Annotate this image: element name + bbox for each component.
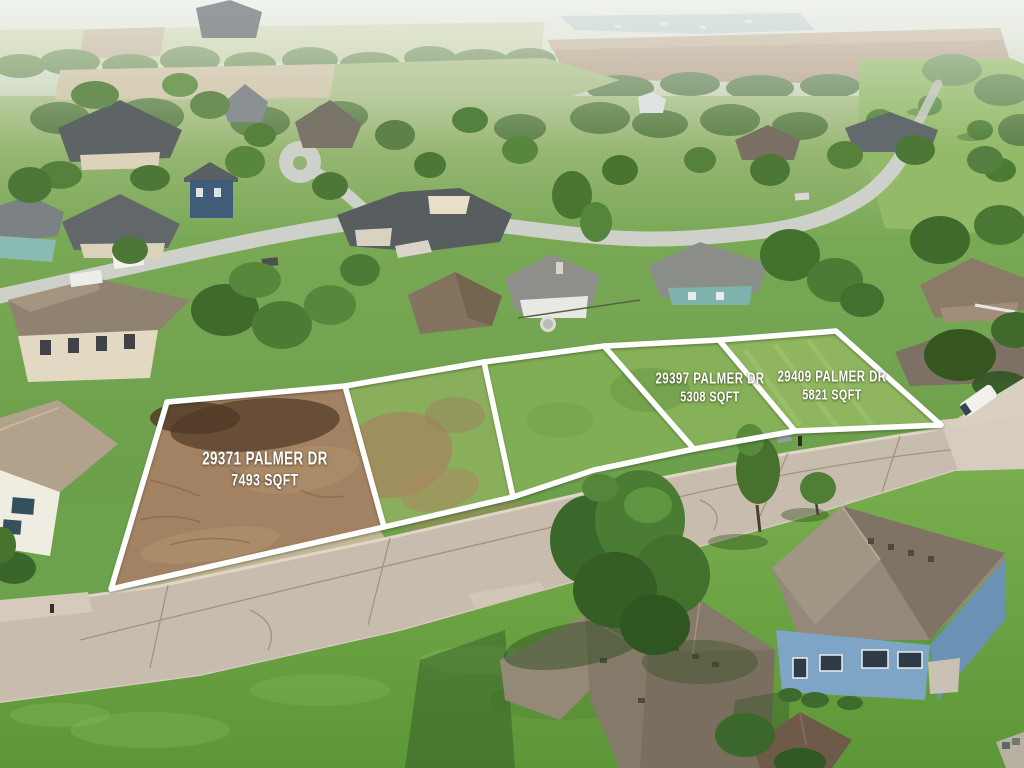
lot-area: 5308 SQFT bbox=[655, 388, 764, 408]
pedestrian bbox=[50, 604, 54, 613]
aerial-photo: 29371 PALMER DR 7493 SQFT 29397 PALMER D… bbox=[0, 0, 1024, 768]
pedestrian-2 bbox=[798, 436, 802, 446]
lot-address: 29409 PALMER DR bbox=[777, 368, 886, 386]
lot-label-29409: 29409 PALMER DR 5821 SQFT bbox=[777, 368, 886, 405]
porch-steps bbox=[928, 658, 960, 694]
lot-label-29371: 29371 PALMER DR 7493 SQFT bbox=[202, 449, 328, 492]
lot-area: 7493 SQFT bbox=[202, 469, 328, 491]
lot-address: 29397 PALMER DR bbox=[655, 370, 764, 388]
lot-label-29397: 29397 PALMER DR 5308 SQFT bbox=[655, 370, 764, 407]
lot-area: 5821 SQFT bbox=[777, 386, 886, 406]
lot-address: 29371 PALMER DR bbox=[202, 449, 328, 470]
